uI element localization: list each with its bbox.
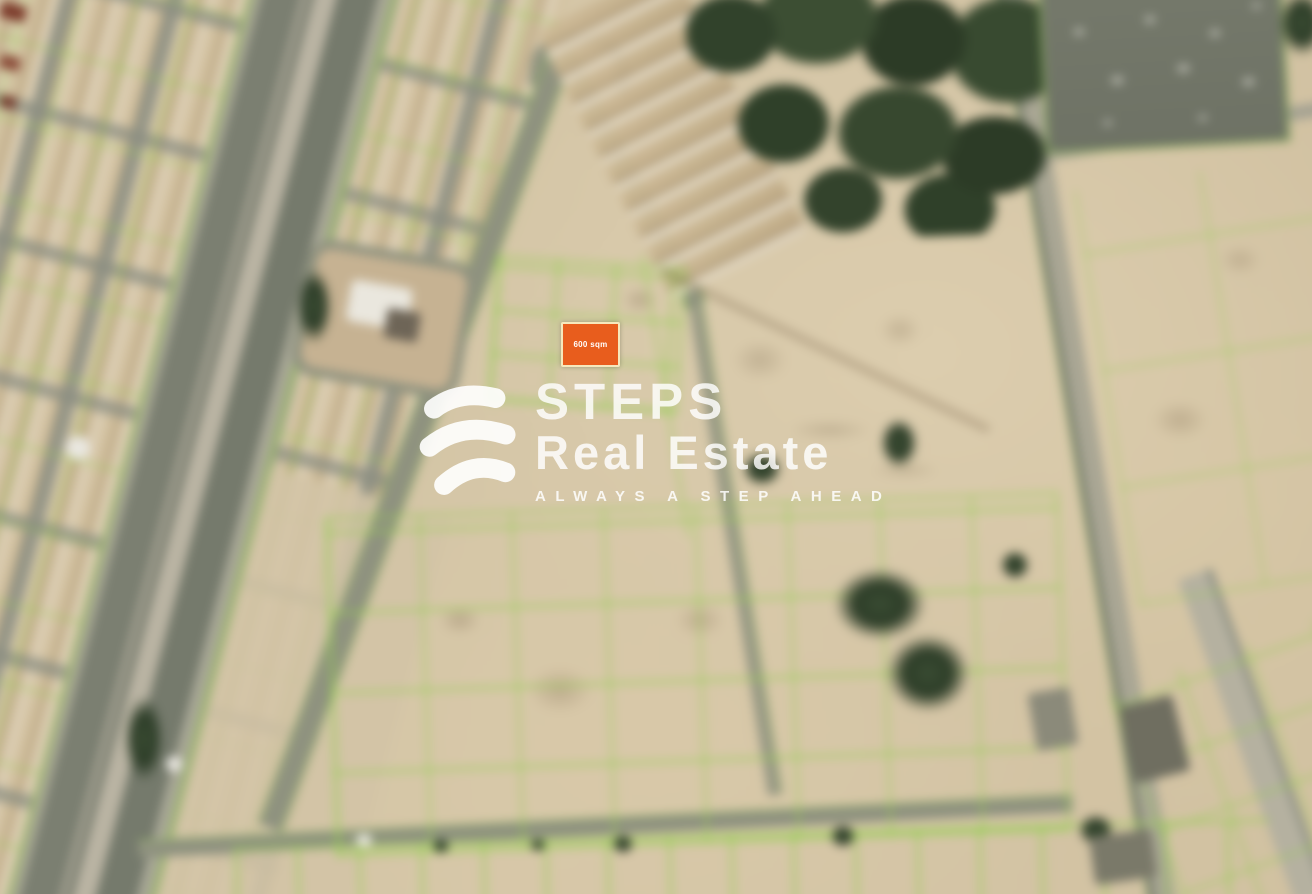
- plot-area-label: 600 sqm: [573, 340, 607, 349]
- tree-row-bottom: [830, 824, 856, 848]
- building: [1089, 829, 1157, 885]
- tree-row-bottom: [530, 838, 546, 852]
- white-structure: [166, 756, 182, 772]
- building-shadow: [383, 308, 422, 343]
- tree-cluster: [880, 418, 918, 468]
- tree-cluster: [834, 568, 926, 640]
- tree-grove: [684, 0, 1073, 245]
- tree-cluster: [1000, 550, 1030, 580]
- tree-cluster: [886, 634, 970, 712]
- white-structure: [356, 834, 372, 846]
- tree-row-bottom: [432, 838, 450, 854]
- tree-cluster: [742, 452, 782, 486]
- water-tank: [66, 436, 90, 460]
- highlighted-plot-marker[interactable]: 600 sqm: [561, 322, 620, 367]
- satellite-plot-map: 600 sqm STEPS Real Estate ALWAYS A STEP …: [0, 0, 1312, 894]
- tree-cluster: [124, 696, 164, 782]
- tree-cluster: [296, 268, 332, 344]
- tree-row-bottom: [612, 834, 634, 854]
- storage-yard: [1038, 0, 1291, 154]
- map-imagery: [0, 0, 1312, 894]
